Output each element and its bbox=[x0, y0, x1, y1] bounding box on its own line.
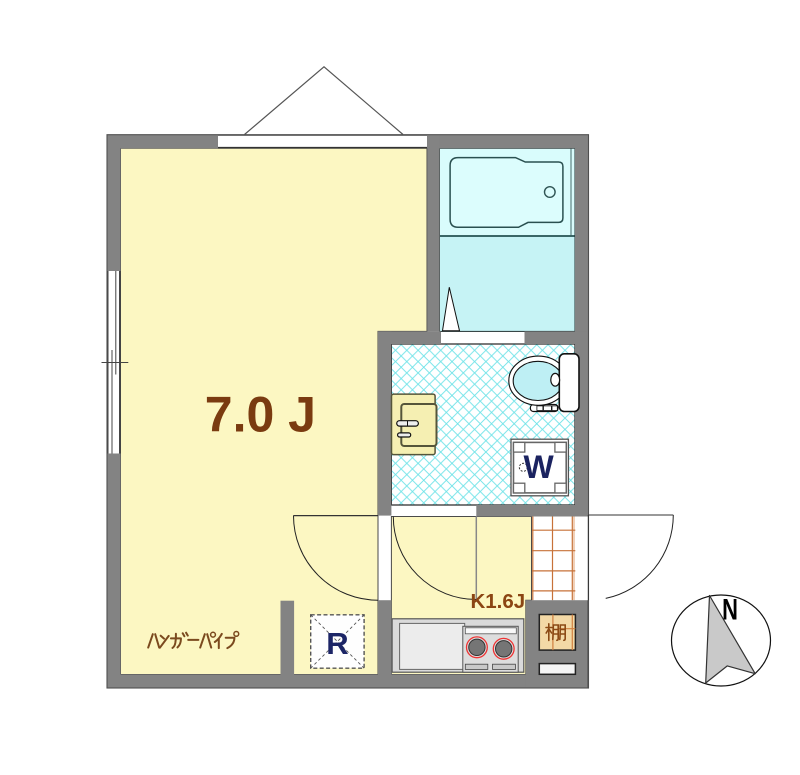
svg-text:7.0 J: 7.0 J bbox=[205, 387, 316, 443]
svg-text:R: R bbox=[326, 626, 348, 661]
svg-text:W: W bbox=[523, 449, 554, 485]
svg-text:K1.6J: K1.6J bbox=[470, 590, 525, 613]
svg-text:N: N bbox=[722, 592, 738, 626]
